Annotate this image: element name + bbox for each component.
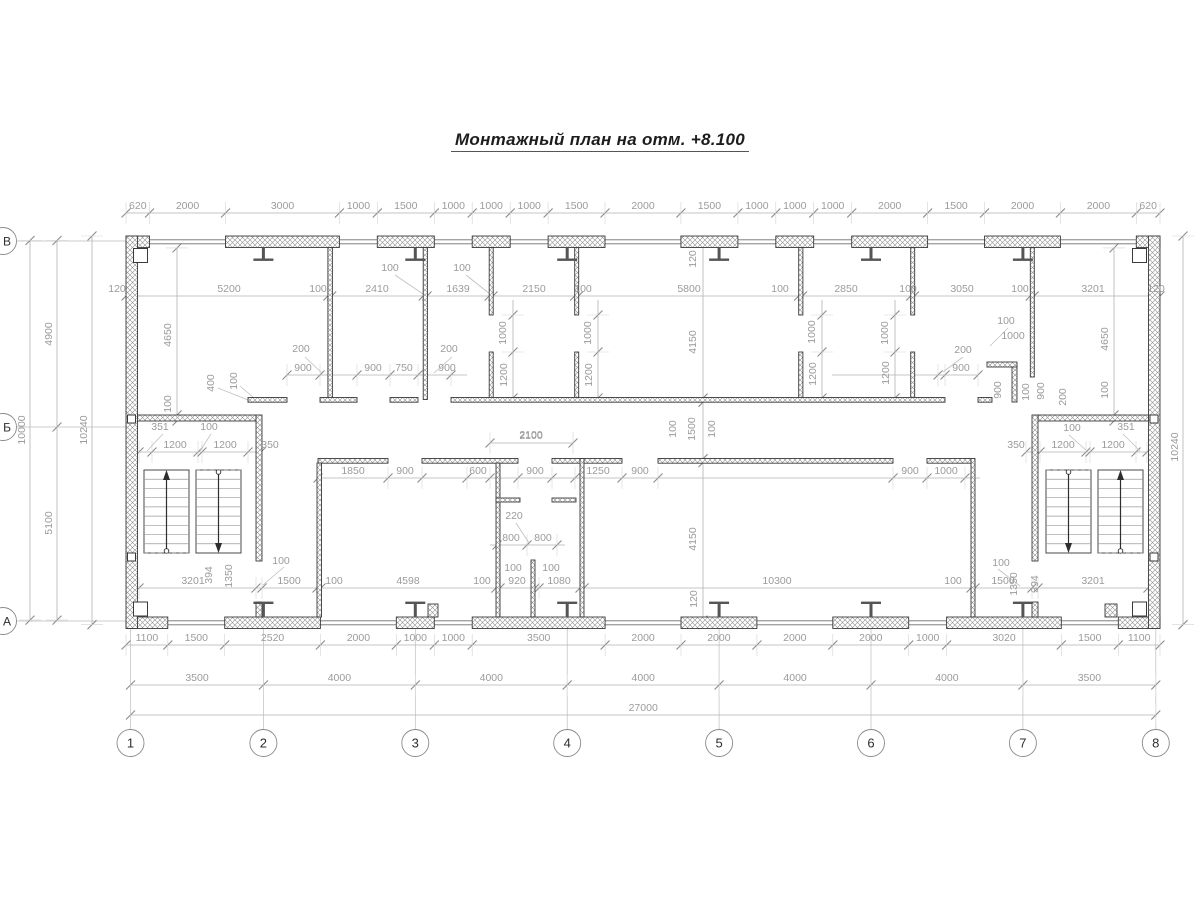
dim-text: 200 (954, 344, 972, 356)
steel-column-icon (1013, 259, 1033, 261)
dim-text: 1200 (880, 361, 892, 385)
steel-column-icon (1013, 602, 1033, 604)
axis-bubble-4: 4 (554, 730, 581, 757)
dim-text: 200 (440, 343, 458, 355)
dim-text: 3201 (1081, 283, 1105, 295)
dim-text: 100 (473, 575, 491, 587)
wall-segment (377, 236, 434, 248)
dim-text: 1080 (547, 575, 571, 587)
dim-text: 100 (1099, 381, 1111, 399)
dim-text: 1000 (916, 632, 940, 644)
dim-text: 120 (688, 590, 700, 608)
wall-segment (496, 463, 500, 617)
dim-text: 2000 (783, 632, 807, 644)
dim-text: 900 (631, 465, 649, 477)
wall-segment (911, 248, 915, 316)
dim-text: 10240 (78, 415, 90, 444)
column-marker (128, 553, 136, 561)
wall-segment (1012, 364, 1017, 402)
wall-segment (1105, 604, 1117, 617)
dim-text: 620 (129, 200, 147, 212)
dim-text: 900 (364, 362, 382, 374)
dim-text: 4900 (43, 322, 55, 346)
steel-column-icon (718, 248, 721, 260)
dim-text: 350 (1007, 439, 1025, 451)
dim-text: 1000 (745, 200, 769, 212)
stair-flight (1046, 470, 1091, 553)
stair-up-arrow-icon (1117, 470, 1124, 480)
wall-segment (256, 415, 262, 561)
dimension-text-layer: 6202000300010001500100010001000150020001… (16, 200, 1181, 714)
dim-text: 1000 (518, 200, 542, 212)
wall-segment (225, 617, 321, 629)
dim-text: 100 (944, 575, 962, 587)
steel-column-icon (566, 604, 569, 617)
dim-text: 120 (1147, 283, 1165, 295)
dim-text: 900 (438, 362, 456, 374)
dim-text: 900 (396, 465, 414, 477)
wall-segment (472, 617, 605, 629)
dim-text: 1200 (583, 363, 595, 387)
dim-text: 3020 (992, 632, 1016, 644)
wall-segment (978, 398, 992, 403)
wall-segment (1032, 415, 1038, 561)
column-marker (134, 249, 148, 263)
dim-text: 100 (228, 372, 240, 390)
dim-text: 920 (508, 575, 526, 587)
dim-text: 2000 (859, 632, 883, 644)
dim-text: 2000 (878, 200, 902, 212)
axis-label-3: 3 (412, 736, 419, 751)
dim-text: 2100 (519, 429, 543, 441)
axis-label-1: 1 (127, 736, 134, 751)
dim-text: 3500 (185, 672, 209, 684)
dim-text: 5800 (677, 283, 701, 295)
wall-segment (799, 248, 803, 316)
dim-text: 1000 (783, 200, 807, 212)
dim-text: 100 (309, 283, 327, 295)
dim-text: 1200 (1051, 439, 1075, 451)
dim-text: 4000 (480, 672, 504, 684)
dim-text: 4000 (632, 672, 656, 684)
stair-flight (144, 470, 189, 553)
stair-flight (1098, 470, 1143, 553)
wall-segment (852, 236, 928, 248)
wall-segment (317, 463, 322, 617)
axis-label-4: 4 (564, 736, 571, 751)
dim-text: 1000 (1001, 330, 1025, 342)
axis-bubble-А: А (0, 608, 17, 635)
dim-text: 1000 (480, 200, 504, 212)
wall-segment (575, 248, 579, 316)
steel-column-icon (557, 259, 577, 261)
dim-text: 1500 (394, 200, 418, 212)
dim-text: 4598 (396, 575, 420, 587)
steel-column-icon (262, 248, 265, 260)
wall-segment (552, 459, 622, 464)
dim-text: 1500 (698, 200, 722, 212)
wall-segment (226, 236, 340, 248)
wall-segment (776, 236, 814, 248)
dim-text: 100 (1063, 422, 1081, 434)
dim-text: 200 (1057, 388, 1069, 406)
dim-text: 3201 (181, 575, 205, 587)
dim-text: 1350 (1008, 572, 1020, 596)
wall-segment (1030, 248, 1034, 378)
steel-column-icon (262, 604, 265, 617)
dim-text: 100 (1020, 383, 1032, 401)
dim-text: 4000 (783, 672, 807, 684)
dim-text: 1500 (944, 200, 968, 212)
stair-down-arrow-icon (1065, 543, 1072, 553)
wall-segment (531, 560, 535, 617)
dim-text: 100 (706, 420, 718, 438)
dim-text: 27000 (629, 702, 658, 714)
dim-text: 100 (997, 315, 1015, 327)
dim-text: 600 (469, 465, 487, 477)
dim-text: 2000 (631, 200, 655, 212)
wall-segment (423, 248, 427, 400)
dim-text: 1500 (185, 632, 209, 644)
dim-text: 100 (771, 283, 789, 295)
wall-segment (971, 459, 975, 618)
wall-segment (328, 248, 333, 400)
axis-label-А: А (3, 615, 11, 629)
dim-text: 4150 (687, 330, 699, 354)
dim-text: 4650 (1099, 327, 1111, 351)
dim-text: 350 (261, 439, 279, 451)
dim-text: 2000 (1011, 200, 1035, 212)
dim-text: 2000 (1087, 200, 1111, 212)
wall-segment (318, 459, 388, 464)
steel-column-icon (557, 602, 577, 604)
axis-bubble-8: 8 (1142, 730, 1169, 757)
dim-text: 1250 (586, 465, 610, 477)
dim-text: 10000 (16, 415, 28, 444)
dim-text: 100 (162, 395, 174, 413)
axis-bubble-7: 7 (1009, 730, 1036, 757)
axis-bubble-В: В (0, 228, 17, 255)
axis-label-6: 6 (867, 736, 874, 751)
wall-segment (489, 352, 493, 400)
dim-text: 2000 (707, 632, 731, 644)
wall-segment (927, 459, 971, 464)
dim-text: 394 (203, 566, 215, 584)
steel-column-icon (566, 248, 569, 260)
dim-text: 3500 (1078, 672, 1102, 684)
axis-bubble-3: 3 (402, 730, 429, 757)
dim-text: 1000 (497, 321, 509, 345)
dim-text: 4150 (687, 527, 699, 551)
dim-text: 100 (504, 562, 522, 574)
dim-text: 3201 (1081, 575, 1105, 587)
dim-text: 1500 (1078, 632, 1102, 644)
steel-column-icon (414, 604, 417, 617)
steel-column-icon (1021, 604, 1024, 617)
dim-text: 1000 (404, 632, 428, 644)
wall-segment (256, 602, 262, 617)
dim-text: 1000 (806, 320, 818, 344)
wall-segment (947, 617, 1062, 629)
wall-segment (575, 352, 579, 400)
floor-plan-canvas: 6202000300010001500100010001000150020001… (0, 0, 1200, 900)
dim-text: 400 (205, 374, 217, 392)
dim-text: 1000 (347, 200, 371, 212)
dim-text: 1000 (879, 321, 891, 345)
dim-text: 900 (526, 465, 544, 477)
axis-label-7: 7 (1019, 736, 1026, 751)
wall-segment (390, 398, 418, 403)
dim-text: 900 (294, 362, 312, 374)
wall-segment (451, 398, 945, 403)
column-marker (1133, 249, 1147, 263)
dim-text: 1000 (442, 200, 466, 212)
axis-bubble-Б: Б (0, 414, 17, 441)
column-marker (128, 415, 136, 423)
wall-segment (658, 459, 893, 464)
wall-segment (548, 236, 605, 248)
dim-text: 2000 (631, 632, 655, 644)
dim-text: 800 (534, 532, 552, 544)
dim-text: 620 (1139, 200, 1157, 212)
dim-text: 900 (1035, 382, 1047, 400)
wall-segment (911, 352, 915, 400)
wall-segment (681, 617, 757, 629)
stair-down-arrow-icon (215, 543, 222, 553)
axis-bubble-5: 5 (706, 730, 733, 757)
dim-text: 2150 (522, 283, 546, 295)
wall-segment (987, 362, 1017, 367)
wall-segment (833, 617, 909, 629)
steel-column-icon (405, 602, 425, 604)
dim-text: 100 (667, 420, 679, 438)
wall-segment (422, 459, 518, 464)
dim-text: 750 (395, 362, 413, 374)
wall-segment (396, 617, 434, 629)
dim-text: 1200 (163, 439, 187, 451)
dim-text: 5200 (217, 283, 241, 295)
wall-segment (552, 498, 576, 502)
dim-text: 1500 (686, 417, 698, 441)
dim-text: 1100 (136, 632, 159, 644)
dim-text: 1350 (223, 564, 235, 588)
axis-bubble-2: 2 (250, 730, 277, 757)
dim-text: 1100 (1128, 632, 1151, 644)
steel-column-icon (405, 259, 425, 261)
wall-segment (248, 398, 287, 403)
dim-text: 5100 (43, 511, 55, 535)
dim-text: 10240 (1169, 432, 1181, 461)
dim-text: 3050 (950, 283, 974, 295)
steel-column-icon (861, 602, 881, 604)
dim-text: 2000 (347, 632, 371, 644)
steel-column-icon (870, 604, 873, 617)
dim-text: 1200 (498, 363, 510, 387)
axis-label-Б: Б (3, 421, 11, 435)
dim-text: 3000 (271, 200, 295, 212)
steel-column-icon (870, 248, 873, 260)
dim-text: 100 (992, 557, 1010, 569)
dim-text: 1000 (934, 465, 958, 477)
dim-text: 4000 (328, 672, 352, 684)
dim-text: 4000 (935, 672, 959, 684)
steel-column-icon (709, 602, 729, 604)
axis-bubbles-layer: 12345678ВБА (0, 228, 1169, 757)
column-marker (134, 602, 148, 616)
wall-segment (580, 459, 584, 618)
dim-text: 10300 (762, 575, 791, 587)
steel-column-icon (718, 604, 721, 617)
dim-text: 1000 (821, 200, 845, 212)
wall-segment (428, 604, 438, 617)
dim-text: 1000 (582, 321, 594, 345)
dim-text: 394 (1029, 575, 1041, 593)
dim-text: 900 (952, 362, 970, 374)
dim-text: 800 (502, 532, 520, 544)
dim-text: 2000 (176, 200, 200, 212)
dim-text: 1200 (213, 439, 237, 451)
steel-column-icon (414, 248, 417, 260)
steel-column-icon (861, 259, 881, 261)
axis-bubble-1: 1 (117, 730, 144, 757)
dim-text: 200 (292, 343, 310, 355)
steel-column-icon (253, 602, 273, 604)
axis-label-В: В (3, 235, 11, 249)
stair-up-arrow-icon (163, 470, 170, 480)
dim-text: 351 (1117, 421, 1135, 433)
column-marker (1133, 602, 1147, 616)
dim-text: 1200 (807, 362, 819, 386)
wall-segment (681, 236, 738, 248)
dim-text: 100 (1011, 283, 1029, 295)
steel-column-icon (253, 259, 273, 261)
dim-text: 100 (899, 283, 917, 295)
drawing-sheet: Монтажный план на отм. +8.100 6202000300… (0, 0, 1200, 900)
steel-column-icon (709, 259, 729, 261)
dim-text: 1500 (565, 200, 589, 212)
dim-text: 1000 (442, 632, 466, 644)
dim-text: 900 (901, 465, 919, 477)
wall-segment (496, 498, 520, 502)
dim-text: 3500 (527, 632, 551, 644)
wall-segment (799, 352, 803, 400)
dim-text: 900 (992, 381, 1004, 399)
wall-segment (320, 398, 357, 403)
dim-text: 1850 (341, 465, 365, 477)
dim-text: 4650 (162, 323, 174, 347)
dim-text: 1200 (1101, 439, 1125, 451)
column-marker (1150, 415, 1158, 423)
stair-flight (196, 470, 241, 553)
dim-text: 100 (272, 555, 290, 567)
wall-segment (985, 236, 1061, 248)
dim-text: 100 (325, 575, 343, 587)
wall-segment (126, 236, 138, 629)
dim-text: 351 (151, 421, 169, 433)
dimension-layer (19, 202, 1194, 726)
column-marker (1150, 553, 1158, 561)
dim-text: 1639 (446, 283, 470, 295)
dim-text: 120 (108, 283, 126, 295)
dim-text: 1500 (277, 575, 301, 587)
wall-segment (472, 236, 510, 248)
dim-text: 100 (453, 262, 471, 274)
axis-label-5: 5 (715, 736, 722, 751)
wall-segment (489, 248, 493, 316)
axis-label-2: 2 (260, 736, 267, 751)
dim-text: 120 (687, 250, 699, 268)
dim-text: 2850 (834, 283, 858, 295)
dim-text: 100 (542, 562, 560, 574)
dim-text: 100 (200, 421, 218, 433)
wall-segment (1032, 602, 1038, 617)
dim-text: 2520 (261, 632, 285, 644)
dim-text: 220 (505, 510, 523, 522)
stairs-layer (144, 470, 1143, 554)
axis-label-8: 8 (1152, 736, 1159, 751)
axis-lines-layer (17, 241, 1156, 730)
dim-text: 100 (574, 283, 592, 295)
steel-column-icon (1021, 248, 1024, 260)
dim-text: 100 (381, 262, 399, 274)
axis-bubble-6: 6 (858, 730, 885, 757)
dim-text: 2410 (365, 283, 389, 295)
